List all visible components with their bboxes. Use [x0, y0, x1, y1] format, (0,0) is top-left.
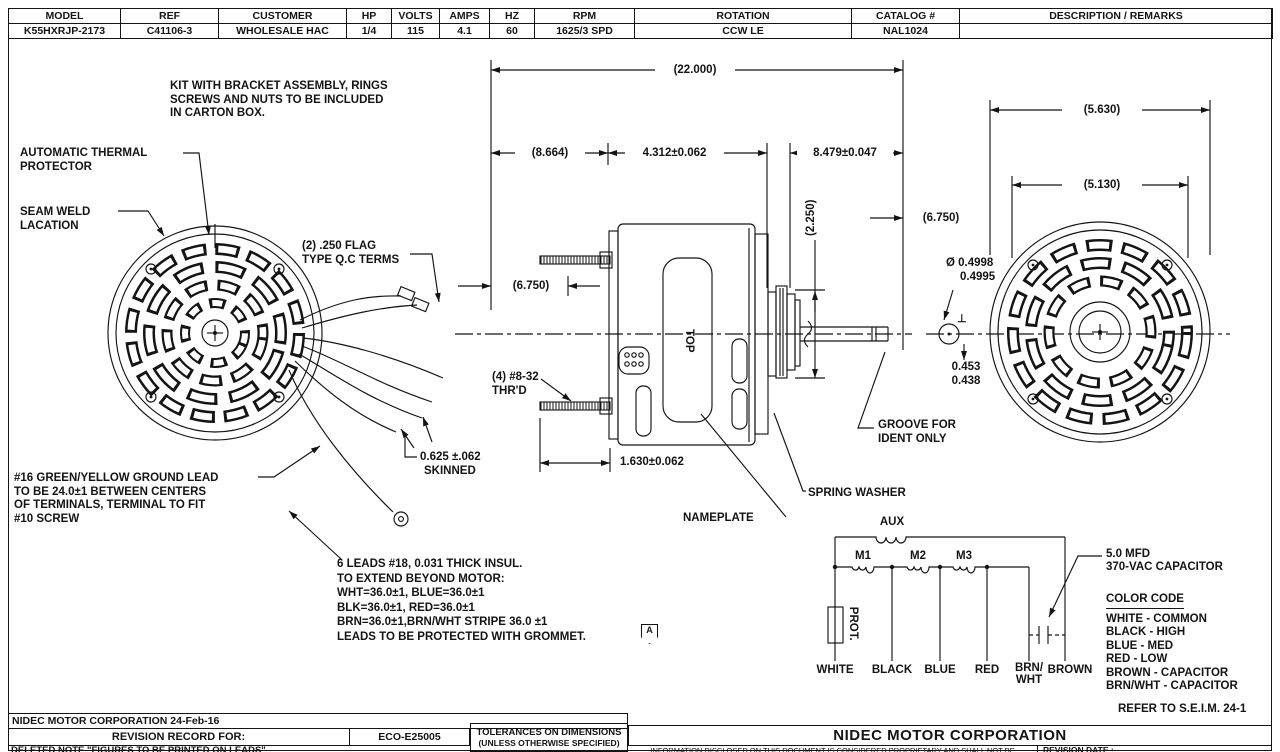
groove-label: GROOVE FOR IDENT ONLY	[878, 419, 956, 446]
dim-2250: (2.250)	[805, 192, 819, 244]
footer-company-title: NIDEC MOTOR CORPORATION	[628, 725, 1272, 746]
spring-washer-label: SPRING WASHER	[808, 487, 906, 501]
color-code-list: WHITE - COMMON BLACK - HIGH BLUE - MED R…	[1106, 613, 1238, 693]
thermal-protector-note: AUTOMATIC THERMAL PROTECTOR	[20, 147, 147, 174]
spec-value-description	[960, 24, 1273, 39]
flag-terminals-note: (2) .250 FLAG TYPE Q.C TERMS	[302, 240, 399, 267]
lead-wires	[289, 287, 443, 526]
dim-skinned-word: SKINNED	[424, 465, 476, 479]
color-code-item: RED - LOW	[1106, 653, 1238, 666]
color-code-item: WHITE - COMMON	[1106, 613, 1238, 626]
wire-label-blue: BLUE	[918, 664, 962, 678]
thread-note: (4) #8-32 THR'D	[492, 371, 539, 398]
schematic-aux-label: AUX	[872, 516, 912, 530]
dim-8479: 8.479±0.047	[797, 146, 893, 160]
spec-value-amps: 4.1	[440, 24, 490, 39]
spec-value-ref: C41106-3	[121, 24, 219, 39]
spec-value-rotation: CCW LE	[635, 24, 852, 39]
spec-table: MODEL REF CUSTOMER HP VOLTS AMPS HZ RPM …	[8, 8, 1273, 39]
color-code-item: BLACK - HIGH	[1106, 626, 1238, 639]
spec-header-customer: CUSTOMER	[219, 9, 347, 24]
leads-note: 6 LEADS #18, 0.031 THICK INSUL. TO EXTEN…	[337, 557, 586, 645]
spec-value-hz: 60	[490, 24, 535, 39]
seam-weld-note: SEAM WELD LACATION	[20, 206, 90, 233]
spec-header-hz: HZ	[490, 9, 535, 24]
spec-value-catalog: NAL1024	[852, 24, 960, 39]
dim-shaft-dia-max: Ø 0.4998	[946, 257, 993, 271]
nameplate-label: NAMEPLATE	[683, 512, 754, 526]
spec-header-rotation: ROTATION	[635, 9, 852, 24]
dim-skinned-value: 0.625 ±.062	[420, 451, 481, 465]
wire-label-brown: BROWN	[1044, 664, 1096, 678]
footer-proprietary-note: INFORMATION DISCLOSED ON THIS DOCUMENT I…	[628, 746, 1037, 752]
wire-label-brnwht: BRN/ WHT	[1009, 662, 1049, 686]
spec-header-ref: REF	[121, 9, 219, 24]
spec-header-hp: HP	[347, 9, 392, 24]
footer-eco-number: ECO-E25005	[350, 729, 470, 746]
dim-6750-left: (6.750)	[500, 279, 562, 293]
motor-front-view	[108, 224, 322, 440]
dim-4312: 4.312±0.062	[625, 146, 724, 160]
color-code-item: BROWN - CAPACITOR	[1106, 667, 1238, 680]
dim-5630: (5.630)	[1062, 103, 1142, 117]
dim-flat-min: 0.438	[944, 375, 988, 389]
schematic-m1-label: M1	[851, 550, 875, 564]
dim-5130: (5.130)	[1062, 178, 1142, 192]
wire-label-black: BLACK	[867, 664, 917, 678]
capacitor-note: 5.0 MFD 370-VAC CAPACITOR	[1106, 548, 1223, 574]
revision-flag-letter: A	[646, 625, 653, 635]
refer-note: REFER TO S.E.I.M. 24-1	[1118, 703, 1246, 717]
color-code-title: COLOR CODE	[1106, 593, 1184, 609]
spec-value-hp: 1/4	[347, 24, 392, 39]
perpendicularity-icon: ⊥	[957, 313, 967, 327]
schematic-m3-label: M3	[952, 550, 976, 564]
footer-tolerances-cell: TOLERANCES ON DIMENSIONS (UNLESS OTHERWI…	[470, 723, 628, 752]
footer-revision-date-label: REVISION DATE :	[1037, 746, 1272, 752]
spec-header-catalog: CATALOG #	[852, 9, 960, 24]
spec-value-model: K55HXRJP-2173	[9, 24, 121, 39]
engineering-drawing-sheet: MODEL REF CUSTOMER HP VOLTS AMPS HZ RPM …	[0, 0, 1280, 752]
dim-flat-max: 0.453	[944, 361, 988, 375]
schematic-prot-label: PROT.	[845, 607, 859, 647]
dim-6750-right: (6.750)	[910, 211, 972, 225]
footer-tolerances-line2: (UNLESS OTHERWISE SPECIFIED)	[471, 738, 627, 748]
color-code-item: BLUE - MED	[1106, 640, 1238, 653]
motor-rear-view	[990, 222, 1210, 442]
spec-header-row: MODEL REF CUSTOMER HP VOLTS AMPS HZ RPM …	[9, 9, 1273, 24]
spec-value-row: K55HXRJP-2173 C41106-3 WHOLESALE HAC 1/4…	[9, 24, 1273, 39]
footer-revision-record-label: REVISION RECORD FOR:	[8, 729, 350, 746]
top-marking: TOP	[681, 325, 695, 357]
spec-header-volts: VOLTS	[392, 9, 440, 24]
dim-8664: (8.664)	[515, 146, 585, 160]
kit-note: KIT WITH BRACKET ASSEMBLY, RINGS SCREWS …	[170, 80, 388, 121]
wire-label-red: RED	[966, 664, 1008, 678]
ring-terminal	[394, 512, 408, 526]
dim-1630: 1.630±0.062	[620, 456, 684, 470]
schematic-m2-label: M2	[906, 550, 930, 564]
spec-value-customer: WHOLESALE HAC	[219, 24, 347, 39]
footer-deleted-note: DELETED NOTE "FIGURES TO BE PRINTED ON L…	[8, 746, 470, 752]
dim-overall-length: (22.000)	[655, 63, 735, 77]
footer-tolerances-line1: TOLERANCES ON DIMENSIONS	[471, 727, 627, 738]
spec-value-volts: 115	[392, 24, 440, 39]
spec-header-rpm: RPM	[535, 9, 635, 24]
color-code-item: BRN/WHT - CAPACITOR	[1106, 680, 1238, 693]
ground-lead-note: #16 GREEN/YELLOW GROUND LEAD TO BE 24.0±…	[14, 472, 218, 526]
dim-shaft-dia-min: 0.4995	[960, 271, 995, 285]
wire-label-white: WHITE	[810, 664, 860, 678]
spec-header-model: MODEL	[9, 9, 121, 24]
spec-header-amps: AMPS	[440, 9, 490, 24]
spec-value-rpm: 1625/3 SPD	[535, 24, 635, 39]
spec-header-description: DESCRIPTION / REMARKS	[960, 9, 1273, 24]
